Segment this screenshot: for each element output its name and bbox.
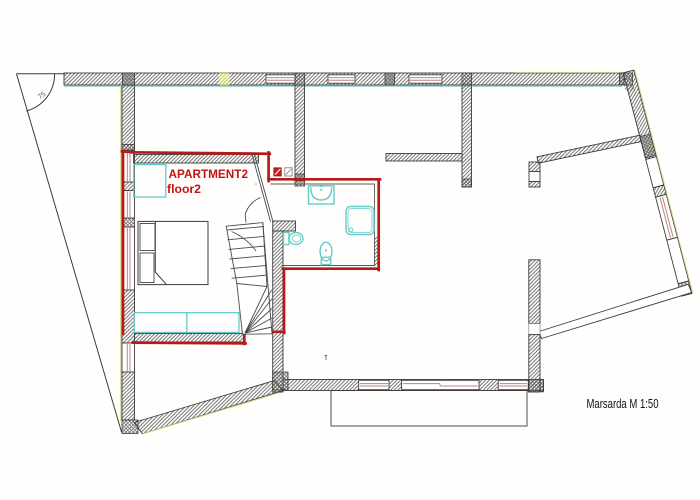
svg-text:floor2: floor2: [167, 182, 201, 196]
svg-text:APARTMENT2: APARTMENT2: [169, 167, 249, 181]
svg-text:Marsarda M 1:50: Marsarda M 1:50: [587, 396, 659, 411]
